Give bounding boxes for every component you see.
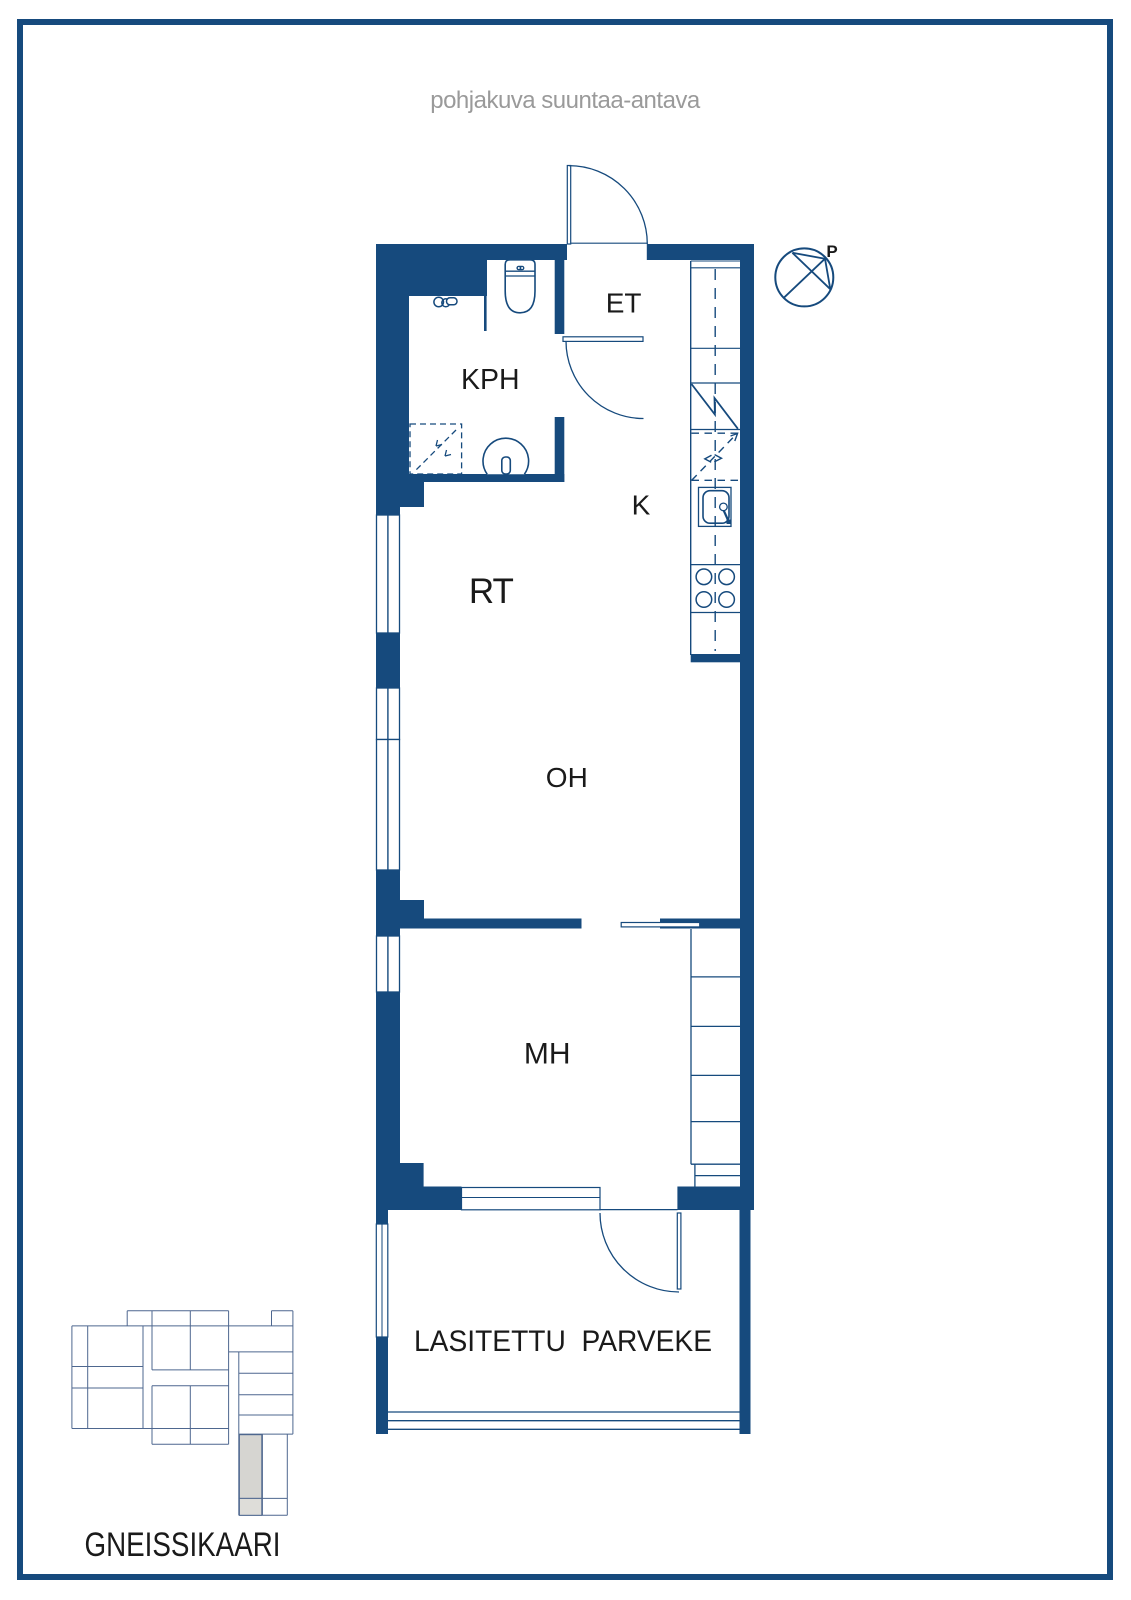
svg-text:ET: ET	[606, 287, 642, 318]
svg-text:GNEISSIKAARI: GNEISSIKAARI	[85, 1526, 281, 1564]
svg-text:pohjakuva suuntaa-antava: pohjakuva suuntaa-antava	[430, 87, 701, 114]
svg-text:KPH: KPH	[461, 364, 520, 396]
svg-text:RT: RT	[469, 572, 514, 611]
svg-text:MH: MH	[524, 1037, 571, 1070]
svg-text:P: P	[826, 242, 837, 261]
svg-text:K: K	[632, 490, 651, 521]
svg-text:LASITETTU PARVEKE: LASITETTU PARVEKE	[414, 1325, 712, 1358]
svg-text:OH: OH	[546, 762, 588, 793]
